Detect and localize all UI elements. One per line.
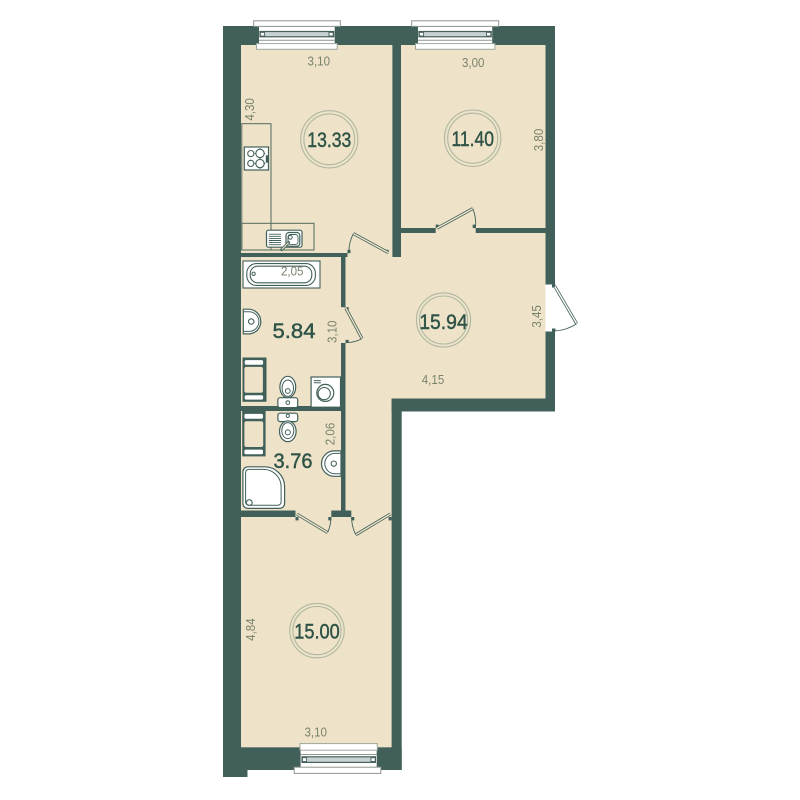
svg-text:3.76: 3.76 xyxy=(274,449,313,473)
svg-text:11.40: 11.40 xyxy=(451,127,494,151)
svg-text:3,80: 3,80 xyxy=(531,129,546,152)
svg-text:3,10: 3,10 xyxy=(324,321,339,344)
svg-text:2,05: 2,05 xyxy=(281,263,304,278)
svg-text:3,10: 3,10 xyxy=(308,53,331,68)
svg-text:15.00: 15.00 xyxy=(294,620,340,644)
svg-text:3,45: 3,45 xyxy=(529,305,544,328)
svg-text:5.84: 5.84 xyxy=(273,319,316,343)
svg-text:3,10: 3,10 xyxy=(304,725,327,740)
svg-text:2,06: 2,06 xyxy=(322,423,337,446)
svg-text:3,00: 3,00 xyxy=(462,55,485,70)
svg-text:4,30: 4,30 xyxy=(242,98,257,121)
svg-text:4,15: 4,15 xyxy=(422,372,445,387)
svg-text:13.33: 13.33 xyxy=(307,128,351,152)
svg-text:15.94: 15.94 xyxy=(419,310,468,334)
svg-text:4,84: 4,84 xyxy=(243,618,258,641)
